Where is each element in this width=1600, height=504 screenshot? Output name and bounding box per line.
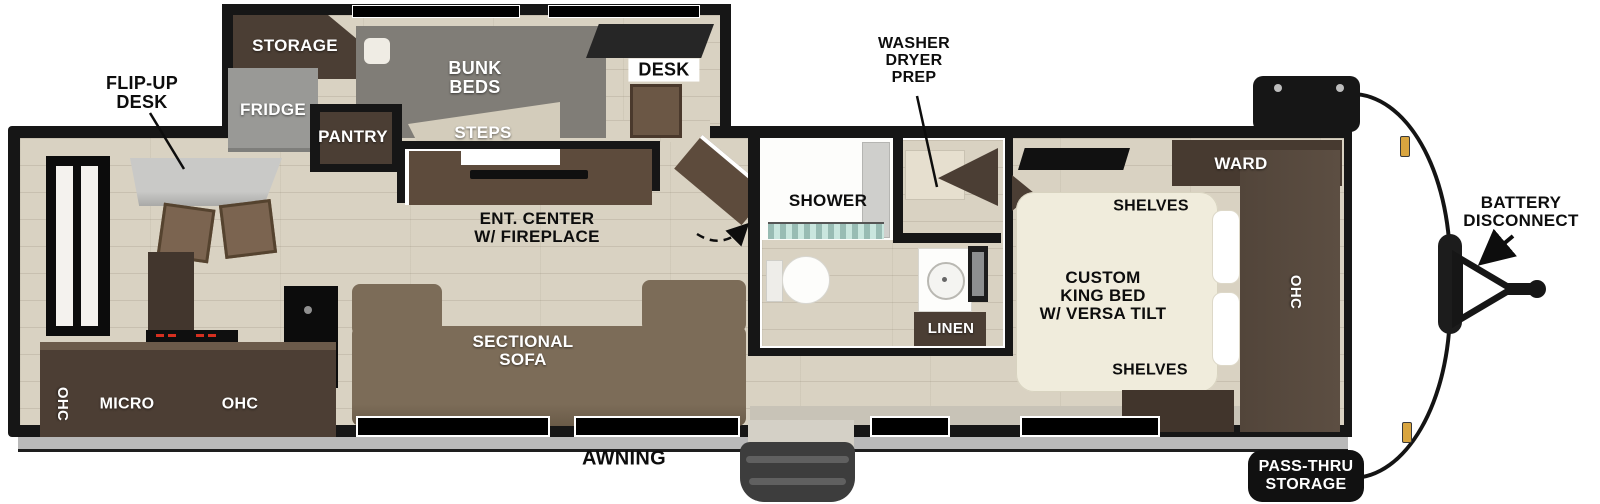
rock-guard-screw-2 [1336, 84, 1344, 92]
stove-burner-1 [156, 334, 164, 337]
storage-label: STORAGE [252, 37, 338, 55]
desk-chair-2 [219, 199, 277, 259]
sectional-sofa-label: SECTIONAL SOFA [473, 333, 574, 369]
rear-window-pane-1 [56, 166, 73, 326]
ent-center-shoulder-left [409, 151, 461, 169]
bottom-window-2 [574, 416, 740, 437]
bunk-window-right [548, 5, 700, 18]
linen-label: LINEN [928, 321, 975, 337]
ohc-kitchen-left-label: OHC [54, 387, 70, 421]
nose-marker-light-top [1400, 136, 1410, 157]
battery-disconnect-arrow [1487, 236, 1513, 258]
sink-drain [942, 277, 947, 282]
pass-thru-storage-badge: PASS-THRU STORAGE [1248, 450, 1364, 502]
stove-burner-3 [196, 334, 204, 337]
stove-burner-4 [208, 334, 216, 337]
cabinet-knob-1 [304, 306, 312, 314]
custom-king-bed-label: CUSTOM KING BED W/ VERSA TILT [1040, 269, 1167, 323]
desk-chair [630, 84, 682, 138]
desk-surface [586, 24, 714, 58]
battery-disconnect-label: BATTERY DISCONNECT [1463, 194, 1578, 230]
washer-dryer-bottom-wall [893, 233, 1001, 243]
bunk-window-left [352, 5, 520, 18]
toilet-tank [766, 260, 783, 302]
shelves-head-label: SHELVES [1113, 199, 1189, 216]
micro-label: MICRO [100, 397, 155, 414]
shower-label: SHOWER [789, 192, 867, 210]
shelves-foot-label: SHELVES [1112, 363, 1188, 380]
ent-center-label: ENT. CENTER W/ FIREPLACE [474, 210, 599, 246]
tv [470, 170, 588, 179]
tongue-jack-hitch [1438, 234, 1546, 334]
shower-glass-base [768, 222, 884, 239]
bunk-beds-label: BUNK BEDS [448, 59, 501, 97]
nose-marker-light-bottom [1402, 422, 1412, 443]
floorplan-scene: STORAGE FLIP-UP DESK FRIDGE PANTRY BUNK … [0, 0, 1600, 504]
bathroom-mirror-glass [972, 252, 984, 296]
ent-center-half-wall-left [397, 141, 405, 203]
stove-burner-2 [168, 334, 176, 337]
bottom-window-3 [870, 416, 950, 437]
ohc-kitchen-label: OHC [222, 397, 258, 414]
flip-up-desk-surface [130, 158, 282, 206]
shower-divider-wall [893, 138, 903, 240]
desk-label: DESK [628, 59, 699, 82]
bottom-window-4 [1020, 416, 1160, 437]
ward-label: WARD [1214, 155, 1267, 173]
rock-guard-screw-1 [1274, 84, 1282, 92]
bottom-window-1 [356, 416, 550, 437]
rear-window-pane-2 [81, 166, 98, 326]
flip-up-desk-label: FLIP-UP DESK [106, 74, 178, 112]
steps-label: STEPS [454, 124, 511, 142]
ohc-bedroom-label: OHC [1287, 275, 1303, 309]
awning-label: AWNING [582, 449, 666, 470]
awning-rail [18, 437, 1348, 452]
bunk-pillow [364, 38, 390, 64]
kitchen-counter [40, 342, 336, 440]
rock-guard-panel [1253, 76, 1360, 132]
entry-step-edge-1 [746, 456, 849, 463]
ent-center-half-wall-top [397, 141, 660, 149]
entry-step-edge-2 [749, 478, 846, 485]
bed-pillow-1 [1212, 210, 1240, 284]
ent-center-half-wall-right [652, 141, 660, 191]
sofa-back-right [642, 280, 746, 332]
fridge-label: FRIDGE [240, 101, 306, 119]
ent-center-shoulder-right [560, 149, 652, 169]
pantry-label: PANTRY [318, 128, 388, 146]
bed-pillow-2 [1212, 292, 1240, 366]
toilet-bowl [782, 256, 830, 304]
washer-dryer-prep-label: WASHER DRYER PREP [878, 36, 950, 86]
bedroom-head-window [1018, 148, 1130, 170]
entry-steps [740, 442, 855, 502]
